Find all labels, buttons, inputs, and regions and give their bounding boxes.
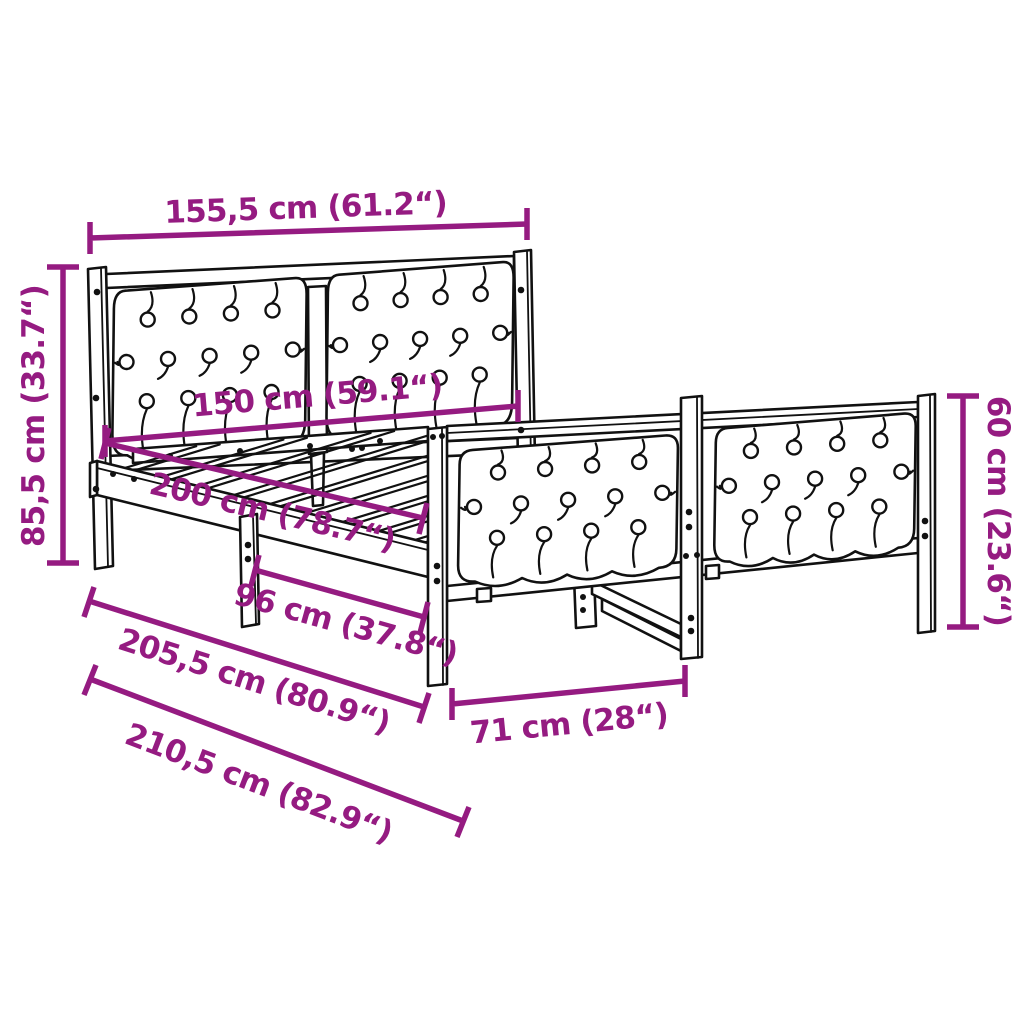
tufting-button	[120, 355, 134, 369]
tufting-button	[224, 307, 238, 321]
dimension-label-footboard-section-width: 71 cm (28“)	[469, 696, 670, 751]
tufting-button	[473, 368, 487, 382]
tufting-button	[266, 303, 280, 317]
tufting-button	[894, 465, 908, 479]
dimension-line-footboard-height	[947, 396, 979, 627]
tufting-button	[585, 458, 599, 472]
tufting-button	[244, 346, 258, 360]
headboard-center-stile	[308, 286, 327, 454]
tufting-button	[493, 326, 507, 340]
tufting-button	[608, 489, 622, 503]
tufting-button	[203, 349, 217, 363]
footboard-bracket-left	[477, 588, 491, 602]
tufting-button	[787, 440, 801, 454]
tufting-button	[467, 500, 481, 514]
tufting-button	[561, 493, 575, 507]
tufting-button	[851, 468, 865, 482]
tufting-button	[182, 310, 196, 324]
tufting-button	[141, 313, 155, 327]
dimension-label-overall-width: 155,5 cm (61.2“)	[164, 185, 448, 231]
footboard-right-post-edge	[930, 395, 931, 632]
footboard-right-post	[918, 394, 935, 633]
tufting-button	[631, 520, 645, 534]
tufting-button	[161, 352, 175, 366]
tufting-button	[829, 503, 843, 517]
tufting-button	[354, 296, 368, 310]
bed-frame-dimension-diagram: 155,5 cm (61.2“) 85,5 cm (33.7“) 150 cm …	[0, 0, 1024, 1024]
tufting-button	[453, 329, 467, 343]
tufting-button	[413, 332, 427, 346]
tufting-button	[765, 475, 779, 489]
tufting-button	[537, 527, 551, 541]
headboard-left-post	[88, 267, 113, 569]
tufting-button	[722, 479, 736, 493]
tufting-button	[373, 335, 387, 349]
dimension-label-headboard-height: 85,5 cm (33.7“)	[16, 285, 52, 547]
tufting-button	[584, 524, 598, 538]
tufting-button	[514, 496, 528, 510]
footboard-center-post-edge	[697, 397, 698, 658]
tufting-button	[474, 287, 488, 301]
dimension-label-footboard-height: 60 cm (23.6“)	[980, 396, 1016, 626]
tufting-button	[491, 466, 505, 480]
tufting-button	[808, 472, 822, 486]
tufting-button	[830, 437, 844, 451]
tufting-button	[655, 486, 669, 500]
tufting-button	[490, 531, 504, 545]
diagram-canvas: 155,5 cm (61.2“) 85,5 cm (33.7“) 150 cm …	[0, 0, 1024, 1024]
tufting-button	[873, 433, 887, 447]
footboard-bracket-right	[706, 565, 719, 579]
tufting-button	[632, 455, 646, 469]
headboard-center-leg	[311, 453, 324, 506]
tufting-button	[744, 444, 758, 458]
tufting-button	[786, 507, 800, 521]
footboard	[428, 394, 935, 686]
tufting-button	[140, 394, 154, 408]
tufting-button	[743, 510, 757, 524]
tufting-button	[394, 293, 408, 307]
tufting-button	[286, 343, 300, 357]
tufting-button	[434, 290, 448, 304]
tufting-button	[872, 500, 886, 514]
tufting-button	[333, 338, 347, 352]
tufting-button	[538, 462, 552, 476]
dimension-label-overall-length: 210,5 cm (82.9“)	[120, 716, 397, 850]
